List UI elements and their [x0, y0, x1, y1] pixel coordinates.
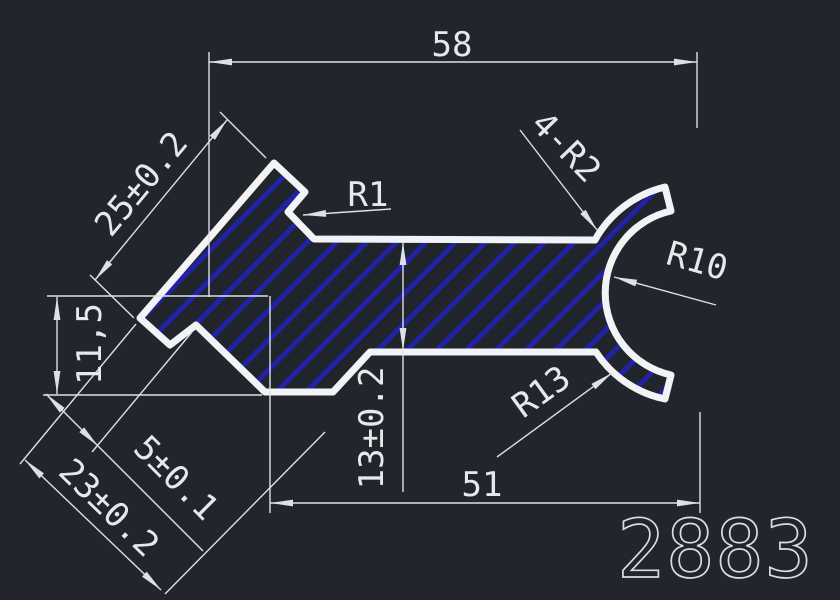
dim-inner-radius-label: R10: [662, 234, 732, 289]
cad-drawing-canvas: 58 25±0.2 R1 4-R2 R10 R13 11,5 5±0.1 23±…: [0, 0, 840, 600]
part-number: 2883: [617, 503, 814, 596]
cad-drawing: 58 25±0.2 R1 4-R2 R10 R13 11,5 5±0.1 23±…: [0, 0, 840, 600]
dim-notch-radius-label: R1: [348, 175, 389, 215]
dim-left-height-label: 11,5: [70, 303, 110, 385]
dim-arm-length-label: 25±0.2: [87, 124, 196, 244]
dim-outer-radius-label: R13: [505, 358, 578, 426]
ext-arm-length-upper: [220, 112, 266, 158]
dim-bottom-width-label: 51: [462, 465, 503, 505]
dim-tip-fillets-label: 4-R2: [523, 104, 609, 191]
profile-outline: [140, 163, 671, 399]
dim-web-thickness-label: 13±0.2: [352, 367, 392, 490]
dim-top-width-label: 58: [432, 25, 473, 65]
